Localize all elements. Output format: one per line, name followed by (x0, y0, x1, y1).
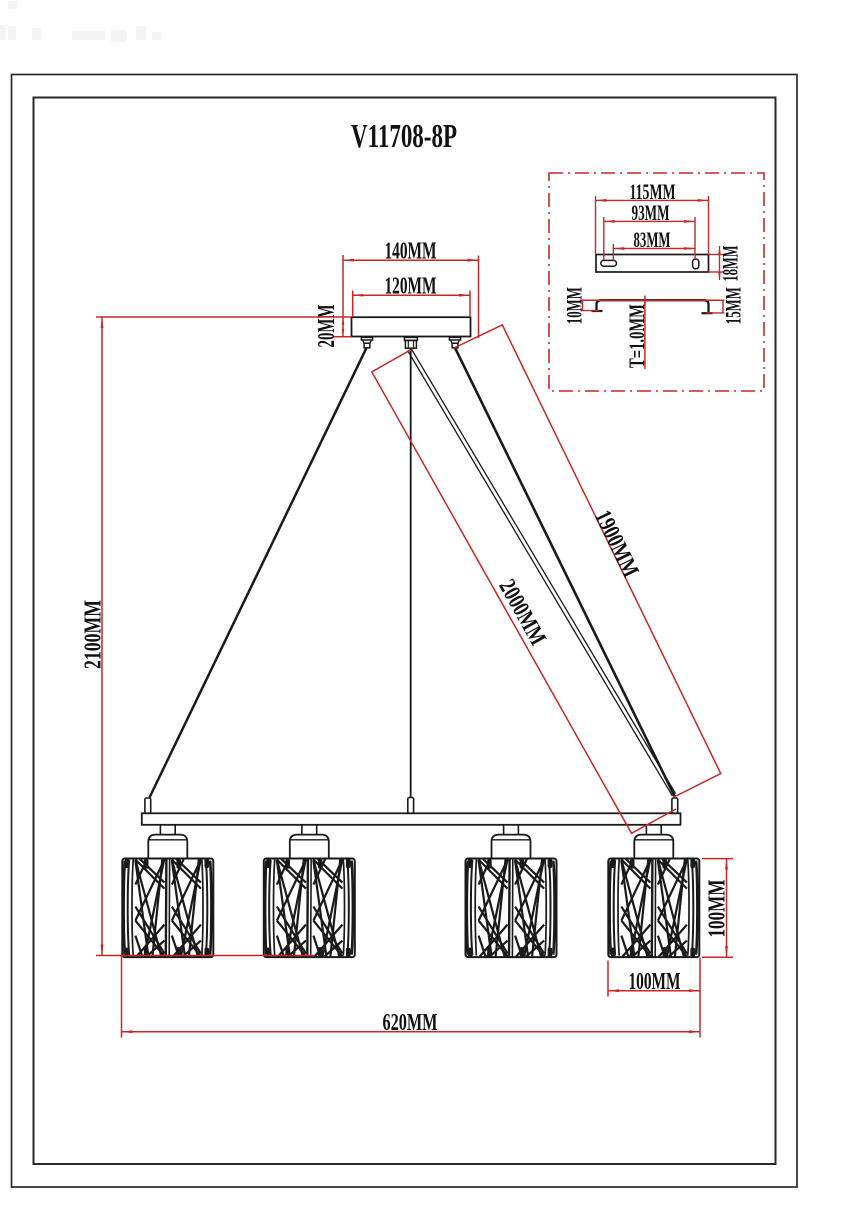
svg-text:T=1.0MM: T=1.0MM (624, 304, 649, 368)
svg-text:93MM: 93MM (632, 200, 670, 225)
svg-text:140MM: 140MM (385, 239, 437, 265)
svg-text:10MM: 10MM (562, 287, 587, 324)
svg-text:100MM: 100MM (629, 969, 681, 995)
svg-text:100MM: 100MM (705, 880, 731, 938)
svg-text:18MM: 18MM (718, 245, 743, 281)
svg-text:2100MM: 2100MM (80, 600, 106, 669)
svg-text:V11708-8P: V11708-8P (351, 118, 457, 155)
svg-text:20MM: 20MM (314, 305, 340, 348)
svg-text:120MM: 120MM (385, 274, 437, 300)
svg-text:15MM: 15MM (721, 287, 746, 324)
svg-text:83MM: 83MM (634, 227, 671, 252)
svg-text:620MM: 620MM (383, 1010, 438, 1036)
